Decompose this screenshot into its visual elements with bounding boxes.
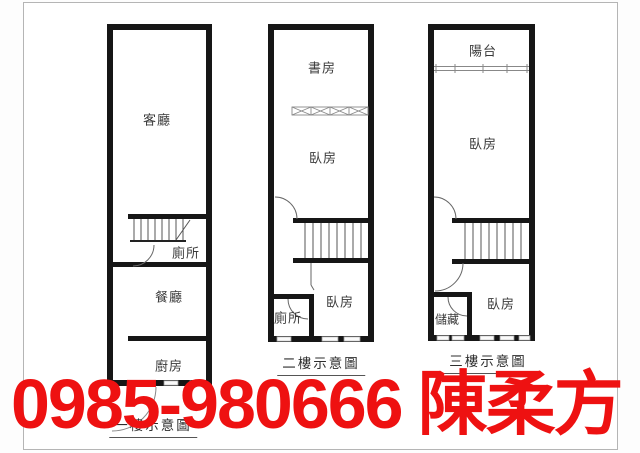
agent-name: 陳柔方 [418, 365, 622, 443]
floor2-label-toilet: 廁所 [274, 308, 302, 327]
floor2-label-bedroom-lower: 臥房 [326, 292, 354, 311]
floor2-label-study: 書房 [308, 58, 336, 77]
floor3-label-bedroom-lower: 臥房 [487, 294, 515, 313]
floor3-label-bedroom-upper: 臥房 [469, 134, 497, 153]
floor3-door-arcs [434, 197, 467, 316]
floor2-closet-divider [292, 107, 368, 115]
floor2-label-bedroom-upper: 臥房 [309, 148, 337, 167]
floor3-label-storage: 儲藏 [435, 311, 459, 328]
floor1-plan [107, 24, 212, 386]
floor3-balcony-window-wall [434, 64, 529, 73]
floor3-label-balcony: 陽台 [469, 41, 497, 60]
phone-number-overlay: 0985-980666 [11, 365, 402, 443]
floor1-label-living-room: 客廳 [143, 110, 171, 129]
floor1-label-toilet: 廁所 [172, 243, 200, 262]
floor1-label-dining-room: 餐廳 [155, 287, 183, 306]
floor2-stairs [305, 223, 361, 258]
contact-overlay: 0985-980666陳柔方 [11, 369, 622, 439]
floor1-stairs [130, 219, 190, 241]
floor3-stairs [465, 223, 521, 259]
floor3-plan [428, 24, 535, 341]
floorplan-sheet: 客廳 廁所 餐廳 廚房 一樓示意圖 書房 臥房 臥房 廁所 二樓示意圖 陽台 臥… [0, 0, 640, 453]
